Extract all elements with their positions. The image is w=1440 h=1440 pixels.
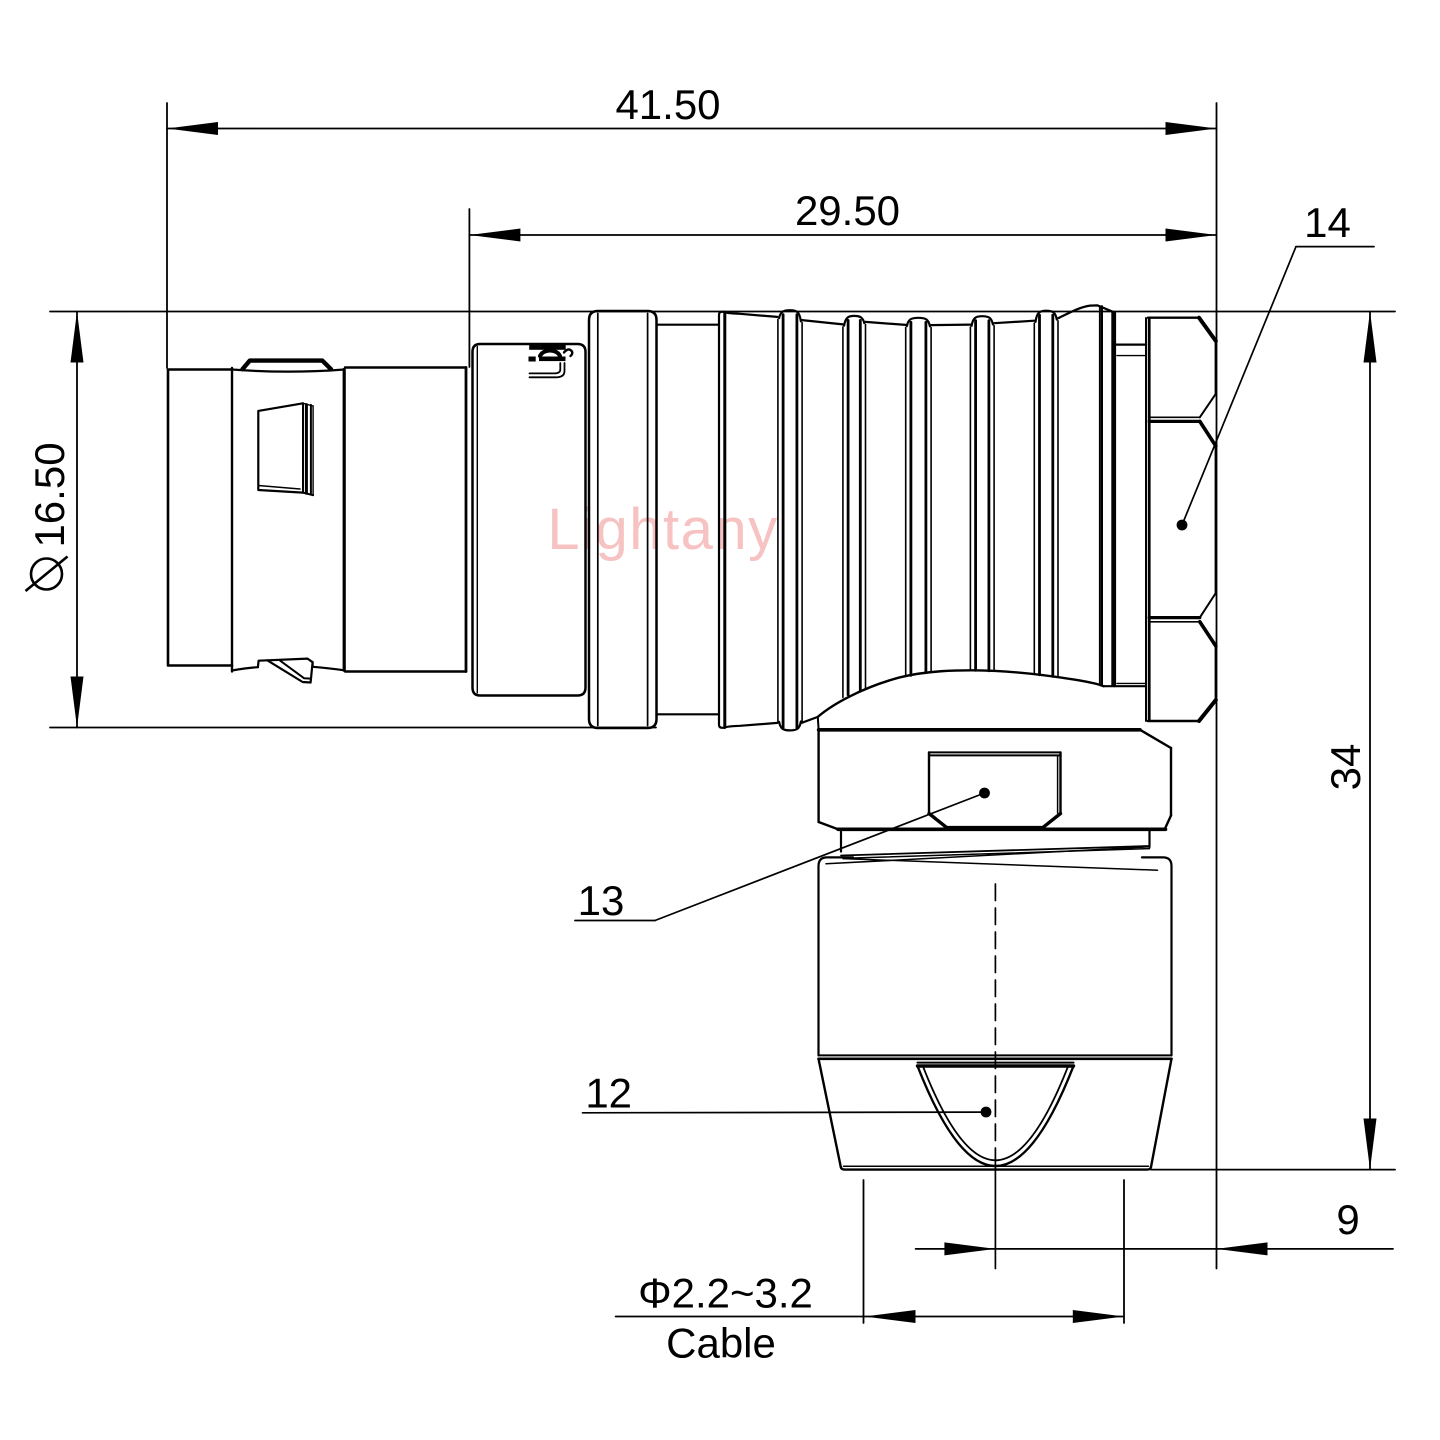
svg-text:9: 9 bbox=[1336, 1196, 1359, 1243]
svg-text:41.50: 41.50 bbox=[615, 81, 720, 128]
svg-text:14: 14 bbox=[1304, 199, 1351, 246]
svg-text:13: 13 bbox=[578, 877, 625, 924]
svg-text:34: 34 bbox=[1322, 744, 1369, 791]
svg-text:Cable: Cable bbox=[666, 1320, 776, 1367]
svg-text:Φ2.2~3.2: Φ2.2~3.2 bbox=[638, 1270, 813, 1317]
svg-text:29.50: 29.50 bbox=[795, 187, 900, 234]
svg-text:16.50: 16.50 bbox=[26, 442, 73, 547]
svg-text:12: 12 bbox=[585, 1070, 632, 1117]
svg-text:Lightany: Lightany bbox=[547, 497, 778, 562]
